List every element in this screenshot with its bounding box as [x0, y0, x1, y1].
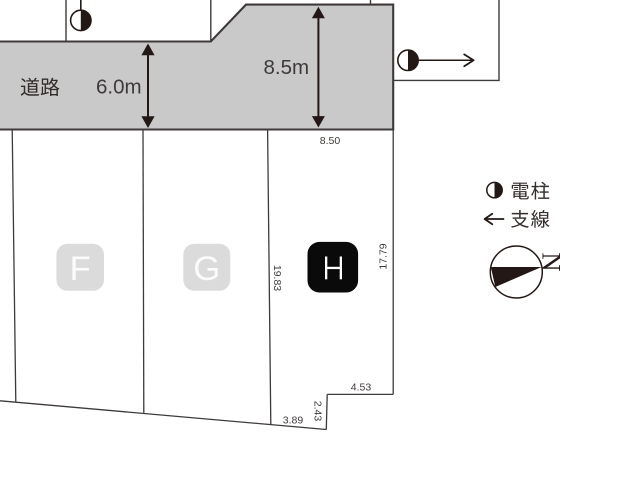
svg-text:2.43: 2.43 — [312, 401, 324, 422]
svg-text:F: F — [70, 250, 91, 288]
svg-text:19.83: 19.83 — [271, 265, 283, 291]
svg-text:3.89: 3.89 — [283, 415, 304, 427]
svg-text:8.5m: 8.5m — [264, 56, 310, 79]
svg-text:4.53: 4.53 — [351, 382, 372, 394]
svg-text:17.79: 17.79 — [378, 243, 390, 269]
svg-text:8.50: 8.50 — [320, 135, 341, 147]
svg-text:6.0m: 6.0m — [96, 76, 142, 99]
svg-text:G: G — [193, 250, 220, 288]
